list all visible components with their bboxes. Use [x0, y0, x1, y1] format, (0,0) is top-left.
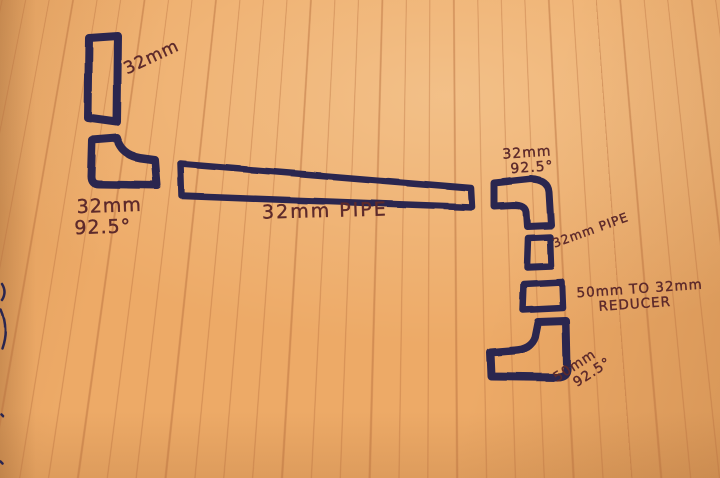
elbow-angle-text: 92.5°	[510, 159, 554, 177]
elbow-32mm-left-shape	[91, 138, 157, 185]
pipe-32mm-vertical-shape	[88, 36, 118, 122]
edge-pen-marks	[1, 284, 5, 464]
pipe-32mm-short-shape	[527, 237, 551, 267]
label-elbow-32mm-right: 32mm 92.5°	[502, 144, 554, 178]
reducer-50-to-32-shape	[523, 282, 563, 310]
label-elbow-32mm-left: 32mm 92.5°	[76, 195, 143, 238]
elbow-angle-text: 92.5°	[74, 215, 143, 238]
notebook-photo: 32mm 32mm 92.5° 32mm PIPE 32mm 92.5° 32m…	[0, 0, 720, 478]
elbow-size-text: 32mm	[76, 195, 142, 218]
label-pipe-32mm-long: 32mm PIPE	[262, 199, 388, 223]
elbow-32mm-right-shape	[494, 179, 551, 226]
pipe-sketch-canvas	[0, 0, 720, 478]
